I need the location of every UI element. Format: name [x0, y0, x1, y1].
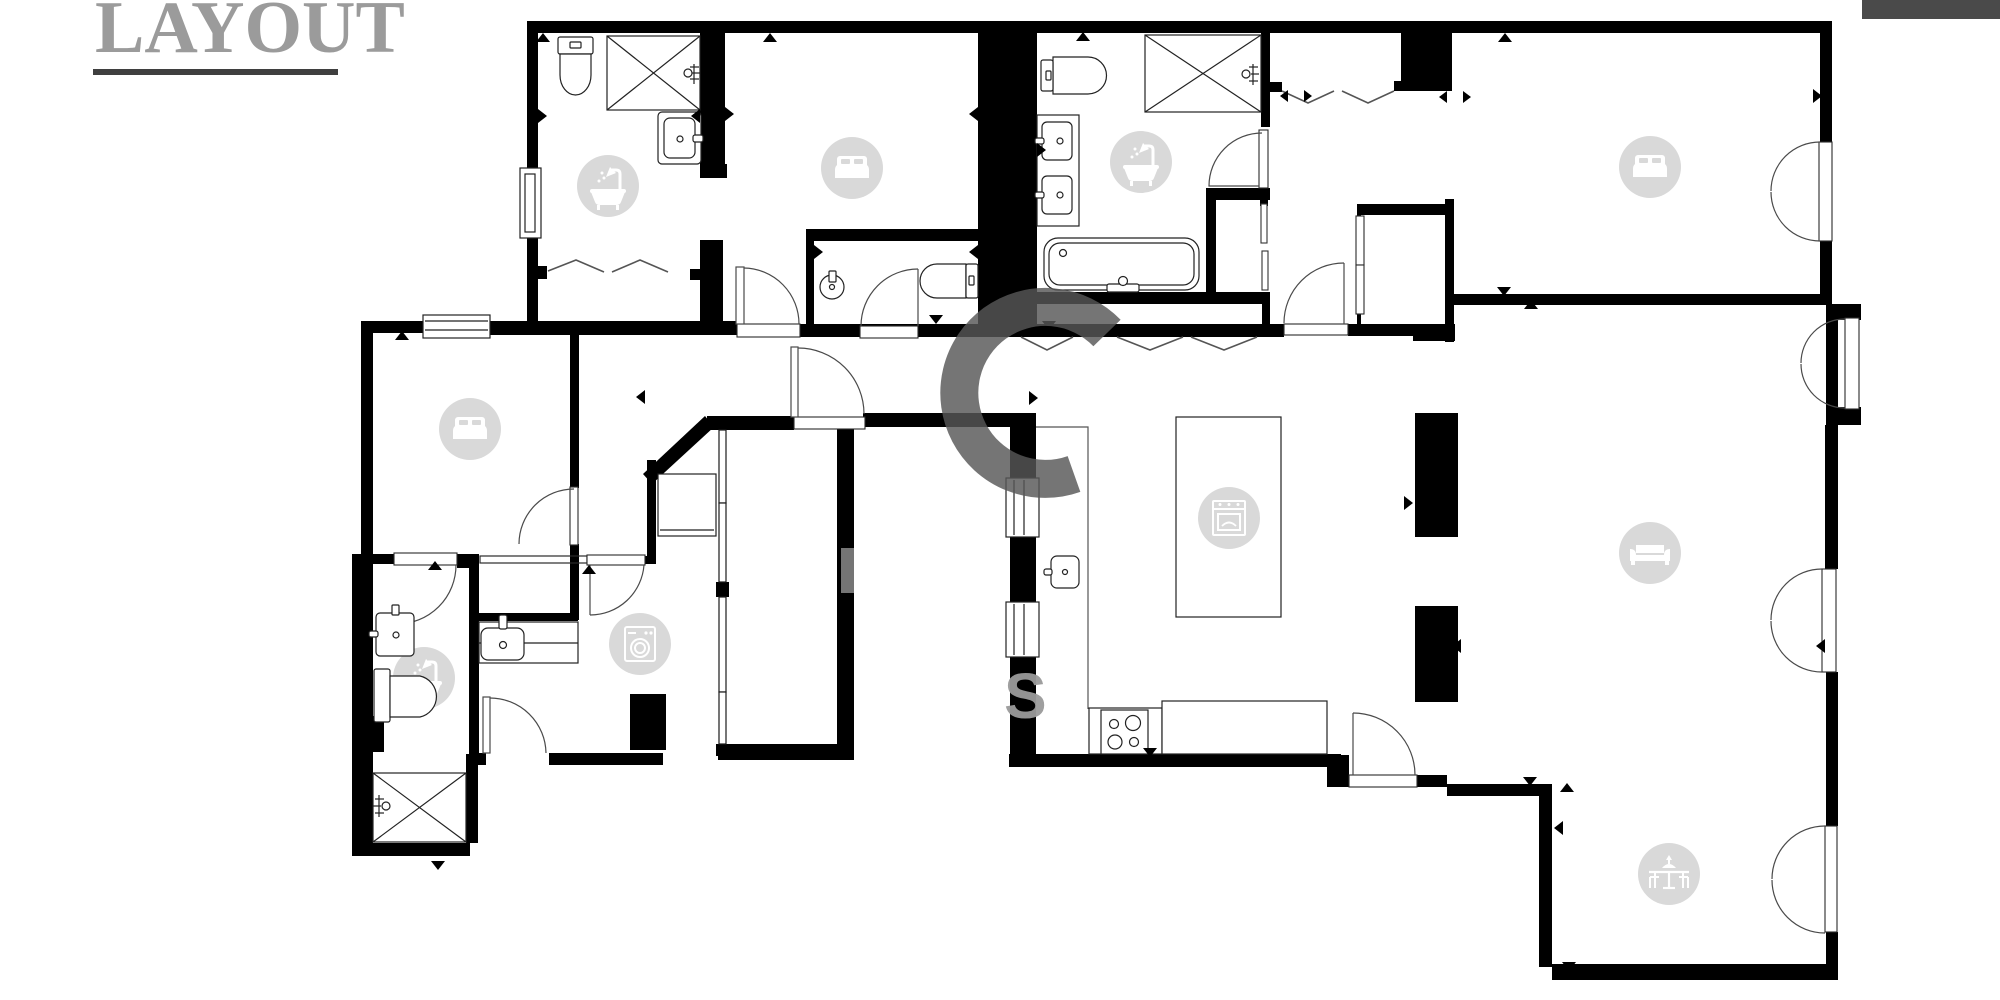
svg-text:S: S: [1004, 660, 1047, 732]
